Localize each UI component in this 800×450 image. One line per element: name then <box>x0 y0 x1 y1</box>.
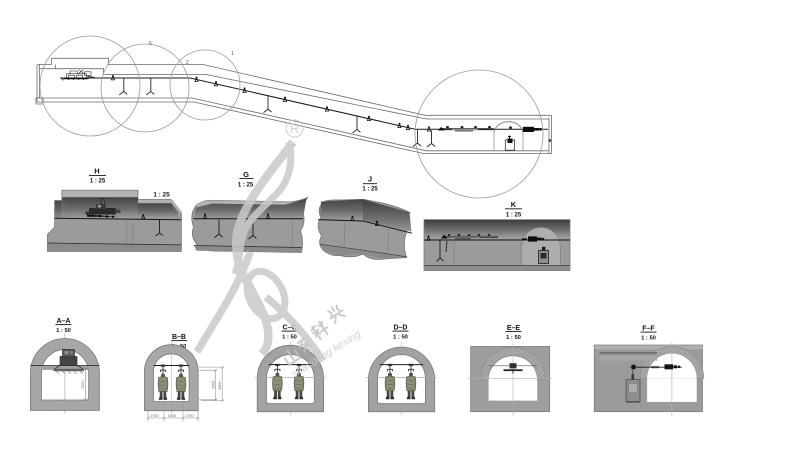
svg-text:K: K <box>511 200 517 209</box>
svg-text:1 : 25: 1 : 25 <box>506 213 522 219</box>
svg-text:1 : 25: 1 : 25 <box>362 186 378 192</box>
svg-text:1700: 1700 <box>185 414 193 418</box>
svg-text:B–B: B–B <box>172 334 186 341</box>
svg-text:1 : 50: 1 : 50 <box>56 328 71 334</box>
svg-text:1 : 50: 1 : 50 <box>641 336 656 342</box>
svg-text:G: G <box>243 170 249 179</box>
svg-text:A–A: A–A <box>56 318 70 325</box>
svg-text:1 : 25: 1 : 25 <box>238 182 254 188</box>
svg-text:2: 2 <box>186 60 189 66</box>
svg-text:3500: 3500 <box>218 382 222 390</box>
svg-text:1700: 1700 <box>150 414 158 418</box>
svg-text:1 : 25: 1 : 25 <box>153 192 170 199</box>
svg-text:1800: 1800 <box>168 414 176 418</box>
svg-text:1 : 25: 1 : 25 <box>90 179 106 185</box>
svg-text:1 : 50: 1 : 50 <box>506 335 521 341</box>
svg-text:1 : 50: 1 : 50 <box>393 335 408 341</box>
svg-text:2500: 2500 <box>81 381 85 389</box>
svg-text:H: H <box>94 167 99 176</box>
svg-text:6: 6 <box>149 41 152 47</box>
svg-text:1: 1 <box>231 51 234 57</box>
svg-text:1 : 50: 1 : 50 <box>282 335 297 341</box>
svg-text:E–E: E–E <box>507 325 521 332</box>
svg-text:F–F: F–F <box>642 326 655 333</box>
svg-text:J: J <box>368 175 372 184</box>
svg-text:D–D: D–D <box>393 325 407 332</box>
svg-text:3000: 3000 <box>211 381 215 389</box>
